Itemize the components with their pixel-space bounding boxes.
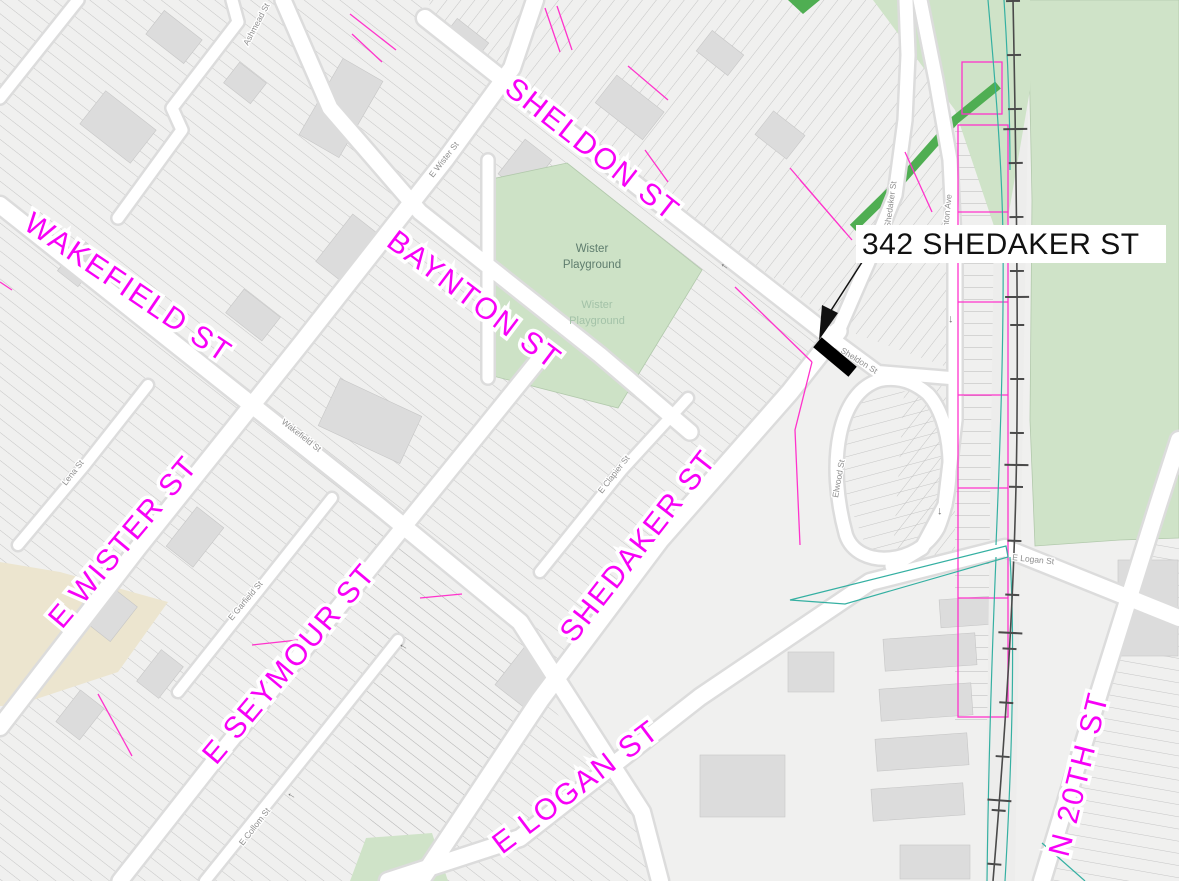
- playground-label-line2: Playground: [563, 259, 621, 271]
- playground-faint-label-line1: Wister: [581, 299, 613, 311]
- annotation-address-label: 342 SHEDAKER ST: [862, 228, 1140, 261]
- playground-label-line1: Wister: [576, 243, 609, 255]
- open-space-right: [1028, 0, 1179, 546]
- map-view[interactable]: → → → → → Wister Playground Wister Playg…: [0, 0, 1179, 881]
- playground-faint-label-line2: Playground: [569, 315, 625, 327]
- one-way-arrow-icon: →: [935, 506, 947, 517]
- one-way-arrow-icon: →: [946, 314, 958, 325]
- parcel-map-canvas: → → → → → Wister Playground Wister Playg…: [0, 0, 1179, 881]
